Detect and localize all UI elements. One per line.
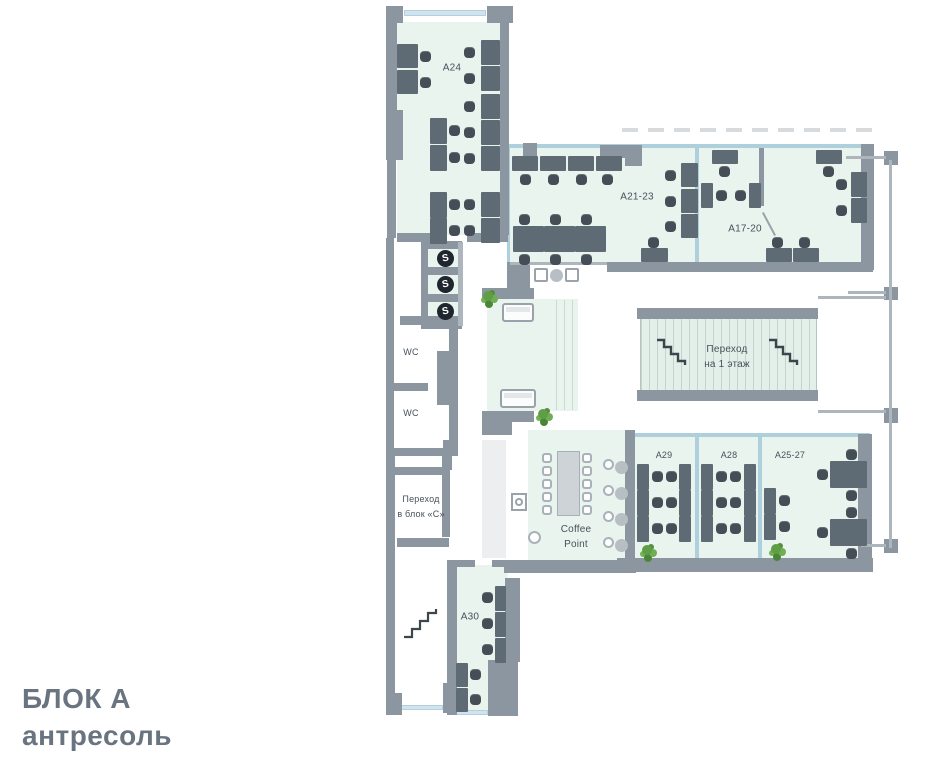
stairs-icon [401,597,441,641]
plan-title: БЛОК А антресоль [22,680,172,754]
door-line [762,212,776,236]
room-label-a17-20: A17-20 [728,224,761,235]
plan-title-line1: БЛОК А [22,680,172,717]
elevator-icon: S [435,274,455,294]
room-label-a21-23: A21-23 [620,192,653,203]
bridge-label-line1: Переход [704,342,750,357]
coffee-label-line2: Point [561,537,591,552]
coffee-point-label: Coffee Point [561,522,591,552]
elevator-icon: S [435,301,455,321]
passage-label-line2: в блок «С» [397,507,444,522]
stairs-icon [654,336,688,372]
bridge-label: Переход на 1 этаж [704,342,750,372]
room-label-a30: A30 [461,612,479,623]
floor-plan-annotations: S S S A24 A21-23 A17-20 A29 A28 A25-27 A… [0,0,951,758]
plan-title-line2: антресоль [22,717,172,754]
elevator-icon: S [435,248,455,268]
room-label-a24: A24 [443,63,461,74]
room-label-wc-lower: WC [403,408,418,418]
sofa [502,303,534,322]
bridge-label-line2: на 1 этаж [704,357,750,372]
room-label-a28: A28 [721,450,738,460]
coffee-label-line1: Coffee [561,522,591,537]
room-label-wc-upper: WC [403,347,418,357]
sofa-back [504,393,532,398]
appliance-dot [515,498,523,506]
stairs-icon [766,336,800,372]
passage-block-c-label: Переход в блок «С» [397,492,444,522]
sofa [500,389,536,408]
room-label-a25-27: A25-27 [775,450,805,460]
room-label-a29: A29 [656,450,673,460]
passage-label-line1: Переход [397,492,444,507]
sofa-back [506,307,530,312]
coffee-table [557,451,580,516]
floor-plan: S S S A24 A21-23 A17-20 A29 A28 A25-27 A… [0,0,951,758]
appliance-icon [511,493,527,511]
